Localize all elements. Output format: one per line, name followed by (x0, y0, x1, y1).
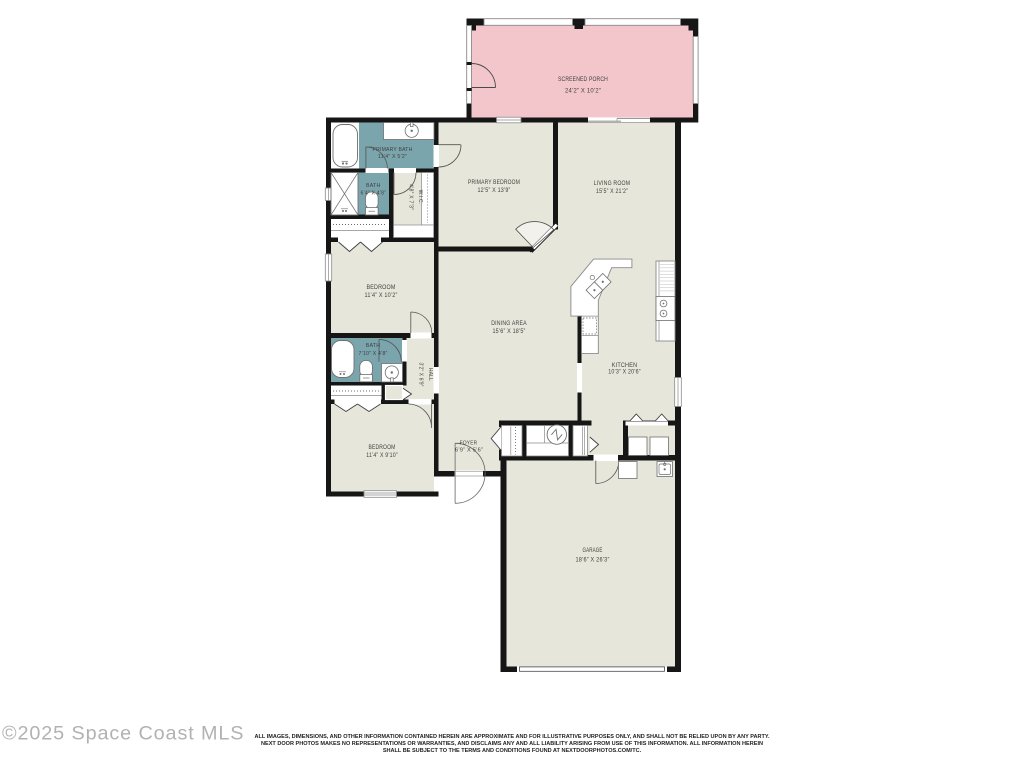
svg-text:4’8” X 7’3”: 4’8” X 7’3” (408, 184, 414, 210)
svg-text:BATH: BATH (366, 343, 381, 349)
svg-text:©2025 Space Coast MLS: ©2025 Space Coast MLS (2, 723, 244, 745)
svg-text:6’4” X 4’8”: 6’4” X 4’8” (361, 190, 387, 196)
svg-text:10’3” X 20’6”: 10’3” X 20’6” (608, 370, 641, 376)
svg-text:KITCHEN: KITCHEN (612, 363, 638, 369)
svg-text:LIVING ROOM: LIVING ROOM (594, 181, 631, 187)
svg-text:SCREENED PORCH: SCREENED PORCH (558, 77, 608, 83)
svg-text:15’6” X 18’5”: 15’6” X 18’5” (493, 329, 526, 335)
svg-text:BEDROOM: BEDROOM (369, 445, 396, 451)
svg-text:HALL: HALL (427, 368, 433, 381)
svg-text:12’5” X 13’9”: 12’5” X 13’9” (478, 188, 511, 194)
svg-text:BATH: BATH (366, 183, 381, 189)
svg-text:11’4” X 5’2”: 11’4” X 5’2” (378, 154, 407, 160)
svg-text:24’2” X 10’2”: 24’2” X 10’2” (565, 89, 601, 95)
svg-text:PRIMARY BEDROOM: PRIMARY BEDROOM (468, 180, 520, 186)
svg-text:SHALL BE SUBJECT TO THE TERMS: SHALL BE SUBJECT TO THE TERMS AND CONDIT… (383, 748, 642, 754)
svg-text:15’5” X 21’2”: 15’5” X 21’2” (596, 189, 628, 195)
svg-text:GARAGE: GARAGE (583, 548, 603, 554)
svg-text:11’4” X 9’10”: 11’4” X 9’10” (366, 453, 398, 459)
svg-text:DINING AREA: DINING AREA (491, 321, 527, 327)
svg-text:11’4” X 10’2”: 11’4” X 10’2” (365, 293, 398, 299)
svg-text:18’6” X 26’3”: 18’6” X 26’3” (576, 558, 610, 564)
svg-text:7’10” X 4’8”: 7’10” X 4’8” (359, 351, 388, 357)
svg-text:NEXT DOOR PHOTOS MAKES NO REPR: NEXT DOOR PHOTOS MAKES NO REPRESENTATION… (261, 741, 763, 747)
svg-text:3’2” X 6’9”: 3’2” X 6’9” (418, 363, 424, 387)
svg-text:PRIMARY BATH: PRIMARY BATH (373, 147, 413, 153)
svg-text:ALL IMAGES, DIMENSIONS, AND OT: ALL IMAGES, DIMENSIONS, AND OTHER INFORM… (254, 734, 770, 740)
svg-text:FOYER: FOYER (460, 441, 478, 447)
svg-text:W.I.C.: W.I.C. (417, 190, 423, 205)
svg-text:6’9” X 5’6”: 6’9” X 5’6” (455, 447, 483, 453)
svg-text:BEDROOM: BEDROOM (367, 285, 396, 291)
